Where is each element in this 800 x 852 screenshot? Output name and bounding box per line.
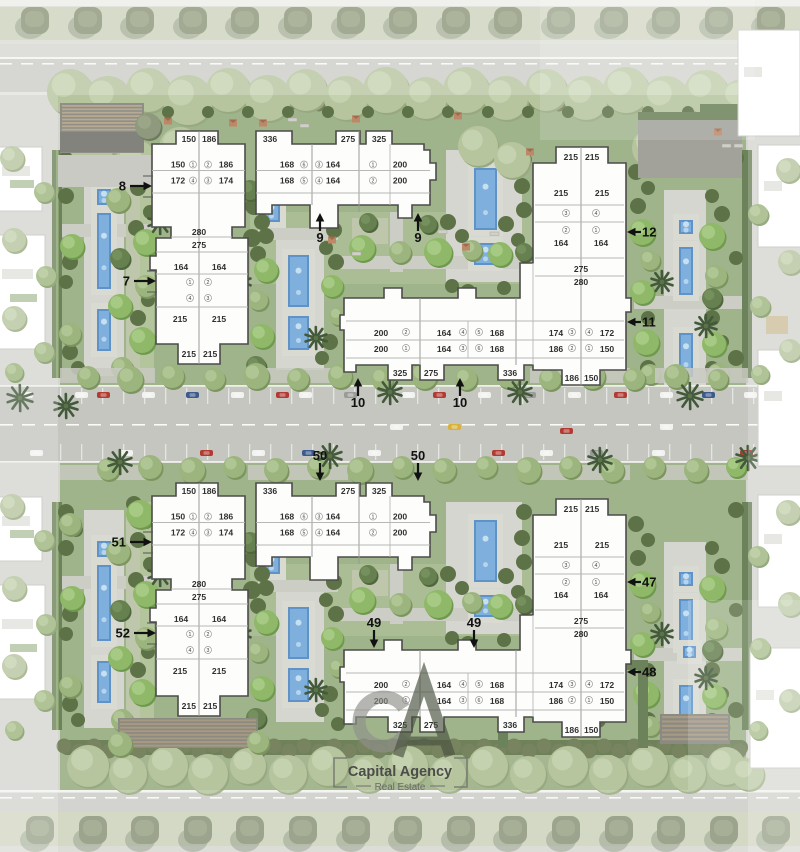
svg-text:150: 150	[600, 344, 615, 354]
svg-text:275: 275	[341, 134, 356, 144]
svg-text:215: 215	[182, 701, 197, 711]
svg-text:215: 215	[212, 666, 227, 676]
svg-text:200: 200	[374, 680, 389, 690]
svg-text:215: 215	[585, 152, 600, 162]
svg-text:168: 168	[490, 696, 505, 706]
svg-text:7: 7	[123, 274, 130, 289]
svg-text:200: 200	[393, 176, 408, 186]
svg-text:164: 164	[554, 590, 569, 600]
svg-text:168: 168	[490, 680, 505, 690]
svg-text:215: 215	[203, 349, 218, 359]
svg-text:280: 280	[574, 277, 589, 287]
svg-text:5: 5	[478, 330, 481, 336]
svg-text:164: 164	[437, 344, 452, 354]
svg-text:8: 8	[119, 179, 126, 194]
svg-text:164: 164	[326, 160, 341, 170]
svg-text:49: 49	[467, 615, 481, 630]
svg-text:1: 1	[595, 580, 598, 586]
svg-text:150: 150	[584, 725, 599, 735]
svg-text:215: 215	[203, 701, 218, 711]
svg-text:186: 186	[219, 512, 234, 522]
svg-text:5: 5	[303, 530, 306, 536]
svg-text:50: 50	[411, 448, 425, 463]
svg-text:200: 200	[374, 328, 389, 338]
svg-text:215: 215	[554, 188, 569, 198]
svg-text:6: 6	[303, 162, 306, 168]
svg-text:1: 1	[588, 698, 591, 704]
svg-text:4: 4	[192, 530, 195, 536]
svg-text:2: 2	[571, 346, 574, 352]
svg-text:168: 168	[490, 344, 505, 354]
svg-text:10: 10	[351, 395, 365, 410]
svg-text:172: 172	[171, 528, 186, 538]
svg-text:6: 6	[303, 514, 306, 520]
svg-text:164: 164	[212, 614, 227, 624]
svg-text:174: 174	[219, 176, 234, 186]
svg-text:4: 4	[595, 211, 598, 217]
svg-text:3: 3	[462, 698, 465, 704]
svg-text:150: 150	[584, 373, 599, 383]
svg-text:2: 2	[207, 514, 210, 520]
svg-text:186: 186	[549, 344, 564, 354]
svg-text:215: 215	[564, 152, 579, 162]
svg-text:168: 168	[280, 160, 295, 170]
svg-text:4: 4	[588, 330, 591, 336]
svg-text:4: 4	[462, 330, 465, 336]
svg-text:3: 3	[565, 211, 568, 217]
svg-text:325: 325	[372, 486, 387, 496]
svg-text:2: 2	[565, 228, 568, 234]
svg-text:4: 4	[318, 530, 321, 536]
svg-text:186: 186	[219, 160, 234, 170]
svg-text:1: 1	[595, 228, 598, 234]
svg-text:48: 48	[642, 665, 656, 680]
svg-text:164: 164	[437, 696, 452, 706]
svg-text:5: 5	[303, 178, 306, 184]
svg-text:150: 150	[182, 134, 197, 144]
svg-text:168: 168	[280, 528, 295, 538]
svg-text:4: 4	[189, 296, 192, 302]
svg-text:2: 2	[571, 698, 574, 704]
svg-text:168: 168	[280, 512, 295, 522]
svg-text:164: 164	[326, 528, 341, 538]
svg-text:164: 164	[437, 680, 452, 690]
svg-text:1: 1	[405, 346, 408, 352]
svg-text:336: 336	[263, 134, 278, 144]
svg-text:280: 280	[574, 629, 589, 639]
svg-text:52: 52	[116, 626, 130, 641]
svg-text:275: 275	[424, 368, 439, 378]
svg-text:215: 215	[554, 540, 569, 550]
svg-text:275: 275	[192, 592, 207, 602]
svg-text:336: 336	[503, 368, 518, 378]
svg-text:1: 1	[588, 346, 591, 352]
svg-text:200: 200	[393, 160, 408, 170]
svg-text:172: 172	[171, 176, 186, 186]
svg-text:172: 172	[600, 328, 615, 338]
svg-text:164: 164	[554, 238, 569, 248]
svg-text:9: 9	[316, 230, 323, 245]
svg-text:1: 1	[189, 280, 192, 286]
svg-text:168: 168	[280, 176, 295, 186]
svg-text:164: 164	[437, 328, 452, 338]
svg-text:164: 164	[326, 176, 341, 186]
svg-text:4: 4	[588, 682, 591, 688]
svg-text:215: 215	[595, 540, 610, 550]
svg-text:51: 51	[112, 535, 126, 550]
svg-text:2: 2	[207, 280, 210, 286]
svg-text:215: 215	[173, 666, 188, 676]
svg-text:3: 3	[571, 682, 574, 688]
svg-text:2: 2	[405, 330, 408, 336]
svg-text:49: 49	[367, 615, 381, 630]
svg-text:11: 11	[642, 315, 656, 330]
svg-text:174: 174	[549, 328, 564, 338]
svg-text:336: 336	[503, 720, 518, 730]
svg-text:186: 186	[202, 134, 217, 144]
svg-text:1: 1	[189, 632, 192, 638]
svg-text:164: 164	[174, 262, 189, 272]
svg-text:4: 4	[189, 648, 192, 654]
svg-text:3: 3	[207, 296, 210, 302]
svg-text:1: 1	[372, 514, 375, 520]
svg-text:150: 150	[182, 486, 197, 496]
svg-text:150: 150	[600, 696, 615, 706]
svg-text:4: 4	[192, 178, 195, 184]
svg-text:3: 3	[318, 514, 321, 520]
svg-text:2: 2	[405, 682, 408, 688]
svg-text:12: 12	[642, 225, 656, 240]
svg-text:5: 5	[478, 682, 481, 688]
svg-text:215: 215	[182, 349, 197, 359]
svg-text:2: 2	[372, 178, 375, 184]
svg-text:47: 47	[642, 575, 656, 590]
svg-text:325: 325	[372, 134, 387, 144]
svg-text:164: 164	[326, 512, 341, 522]
svg-text:174: 174	[549, 680, 564, 690]
svg-text:215: 215	[595, 188, 610, 198]
svg-text:215: 215	[212, 314, 227, 324]
svg-text:164: 164	[594, 590, 609, 600]
svg-text:Real Estate: Real Estate	[375, 782, 426, 793]
svg-text:6: 6	[478, 698, 481, 704]
svg-text:3: 3	[462, 346, 465, 352]
svg-text:174: 174	[219, 528, 234, 538]
svg-text:336: 336	[263, 486, 278, 496]
svg-text:186: 186	[565, 373, 580, 383]
svg-text:Capital Agency: Capital Agency	[348, 764, 452, 780]
svg-text:2: 2	[565, 580, 568, 586]
svg-text:50: 50	[313, 448, 327, 463]
svg-text:150: 150	[171, 160, 186, 170]
svg-text:186: 186	[565, 725, 580, 735]
svg-text:200: 200	[393, 512, 408, 522]
svg-text:215: 215	[173, 314, 188, 324]
svg-text:4: 4	[595, 563, 598, 569]
svg-text:3: 3	[207, 178, 210, 184]
svg-text:325: 325	[393, 368, 408, 378]
svg-text:200: 200	[374, 344, 389, 354]
svg-text:3: 3	[207, 530, 210, 536]
svg-text:215: 215	[564, 504, 579, 514]
svg-text:164: 164	[174, 614, 189, 624]
svg-text:1: 1	[372, 162, 375, 168]
svg-text:164: 164	[594, 238, 609, 248]
svg-text:1: 1	[192, 162, 195, 168]
svg-text:1: 1	[192, 514, 195, 520]
svg-text:2: 2	[207, 632, 210, 638]
svg-text:168: 168	[490, 328, 505, 338]
svg-text:3: 3	[571, 330, 574, 336]
svg-text:215: 215	[585, 504, 600, 514]
svg-text:280: 280	[192, 227, 207, 237]
svg-text:9: 9	[414, 230, 421, 245]
svg-text:4: 4	[462, 682, 465, 688]
svg-text:275: 275	[574, 264, 589, 274]
svg-text:2: 2	[207, 162, 210, 168]
svg-text:275: 275	[192, 240, 207, 250]
svg-text:275: 275	[574, 616, 589, 626]
svg-text:3: 3	[565, 563, 568, 569]
svg-text:10: 10	[453, 395, 467, 410]
svg-text:186: 186	[202, 486, 217, 496]
svg-text:4: 4	[318, 178, 321, 184]
svg-text:200: 200	[393, 528, 408, 538]
svg-text:186: 186	[549, 696, 564, 706]
svg-text:2: 2	[372, 530, 375, 536]
svg-text:172: 172	[600, 680, 615, 690]
svg-text:150: 150	[171, 512, 186, 522]
svg-text:3: 3	[318, 162, 321, 168]
svg-text:3: 3	[207, 648, 210, 654]
svg-text:280: 280	[192, 579, 207, 589]
svg-text:6: 6	[478, 346, 481, 352]
svg-text:275: 275	[341, 486, 356, 496]
svg-text:164: 164	[212, 262, 227, 272]
